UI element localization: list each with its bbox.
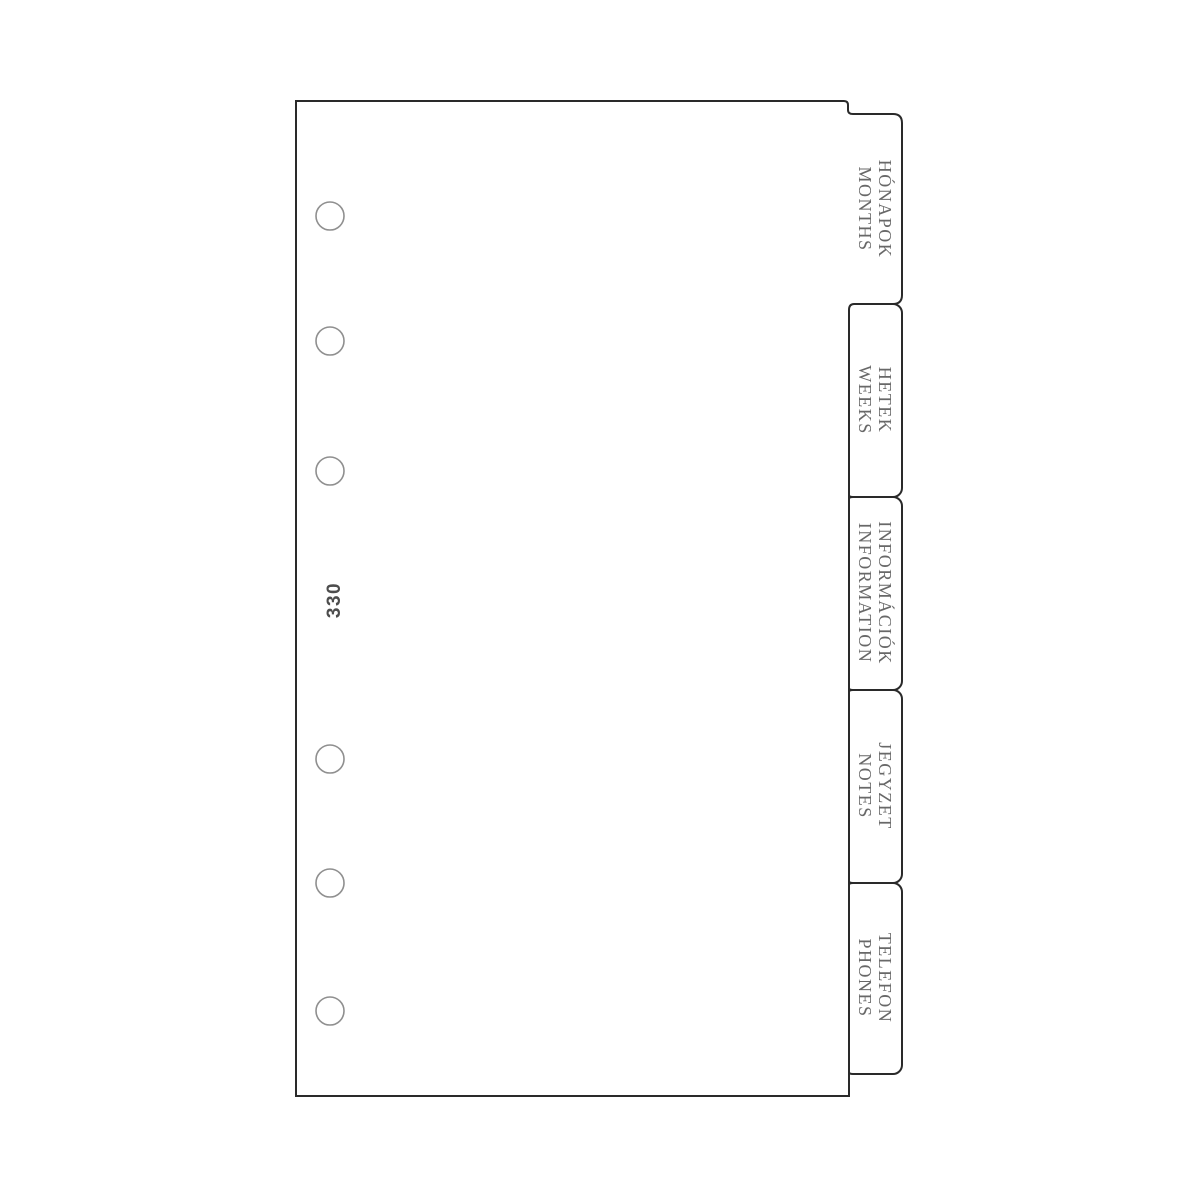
tab-label-months: HÓNAPOK MONTHS bbox=[855, 160, 896, 259]
tab-label-line2: PHONES bbox=[855, 938, 875, 1017]
tab-label-line1: TELEFON bbox=[875, 933, 895, 1024]
punch-hole bbox=[316, 997, 344, 1025]
tab-label-line1: INFORMÁCIÓK bbox=[875, 521, 896, 665]
punch-hole bbox=[316, 202, 344, 230]
tab-label-line1: HÓNAPOK bbox=[875, 160, 896, 259]
divider-page-illustration: HÓNAPOK MONTHS HETEK WEEKS INFORMÁCIÓK I… bbox=[0, 0, 1200, 1200]
punch-hole bbox=[316, 745, 344, 773]
product-number: 330 bbox=[324, 582, 345, 618]
tab-label-line2: NOTES bbox=[855, 753, 875, 819]
punch-hole bbox=[316, 869, 344, 897]
punch-hole bbox=[316, 457, 344, 485]
tab-label-phones: TELEFON PHONES bbox=[855, 933, 895, 1024]
tab-label-line1: JEGYZET bbox=[875, 742, 895, 829]
tab-label-line1: HETEK bbox=[875, 367, 895, 433]
tab-label-information: INFORMÁCIÓK INFORMATION bbox=[855, 521, 896, 665]
tab-label-line2: INFORMATION bbox=[855, 523, 875, 664]
punch-hole bbox=[316, 327, 344, 355]
product-photo: HÓNAPOK MONTHS HETEK WEEKS INFORMÁCIÓK I… bbox=[0, 0, 1200, 1200]
tab-label-line2: WEEKS bbox=[855, 365, 875, 435]
tab-label-weeks: HETEK WEEKS bbox=[855, 365, 895, 435]
tab-label-notes: JEGYZET NOTES bbox=[855, 742, 895, 829]
front-page-with-months-tab bbox=[296, 101, 902, 1096]
tab-label-line2: MONTHS bbox=[855, 166, 875, 251]
